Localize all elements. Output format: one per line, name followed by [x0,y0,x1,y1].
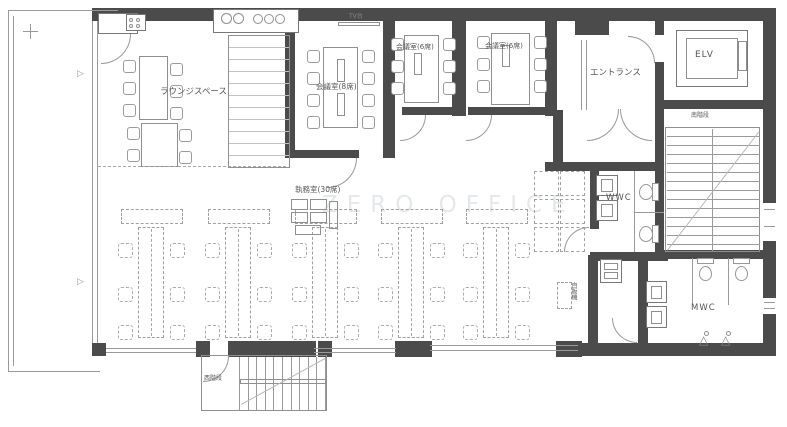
meeting6b-chair [477,58,490,71]
entrance-door-arc [587,109,619,141]
desk-chair [378,287,393,302]
desk-chair [378,243,393,258]
desk-chair [463,325,478,340]
plan-line [692,258,693,305]
stair-tread [667,226,760,227]
wall-meeting6b-bottom [468,107,546,115]
meeting6b-chair [534,58,547,71]
sink-burner-icon [275,14,285,24]
desk-chair [118,243,133,258]
lounge-chair [127,127,140,140]
desk-chair [292,287,307,302]
plan-line [764,308,775,309]
meeting-room-6b-label: 会議室(6席) [485,43,523,50]
copier-station [291,199,308,210]
locker-dashed [534,227,559,252]
desk-chair [170,287,185,302]
desk-chair [205,287,220,302]
desk-chair [515,287,530,302]
desk-chair [257,325,272,340]
desk-cluster-centerline [496,229,497,336]
desk-chair [344,325,359,340]
plan-line [30,24,31,39]
wall-stub [655,21,664,35]
wall-entrance-top [575,8,609,35]
plan-line [764,302,775,303]
table-monitor [414,53,422,75]
wall-post [395,341,432,357]
plan-line [586,40,587,110]
plan-line [97,21,98,343]
meeting8-chair [362,94,375,107]
wall-niche-left [588,255,598,346]
table-monitor [337,93,345,116]
appliance-dot [129,18,133,22]
desk-cluster-centerline [238,229,239,336]
shelf-line [229,59,289,60]
shelf-line [229,131,289,132]
lounge-chair [123,104,136,117]
south-stairs-label: 南階段 [691,113,709,119]
desk-chair [118,325,133,340]
desk-chair [170,243,185,258]
wwc-label: WWC [606,194,632,203]
toilet-icon [639,226,653,242]
mwc-label: MWC [691,304,716,313]
meeting-room-6a-label: 会議室(6席) [396,44,434,51]
lounge-chair [179,151,192,164]
plan-line [728,258,729,305]
balcony-marker-icon: ▷ [77,70,84,79]
cabinet-line [604,263,618,270]
stair-tread [667,136,760,137]
desk-cluster-centerline [411,229,412,336]
desk-chair [430,325,445,340]
lounge-chair [123,82,136,95]
wall-meeting6a-bottom [402,107,455,115]
plan-line [581,40,582,110]
desk-chair [344,243,359,258]
meeting8-chair [307,116,320,129]
shelf-line [229,107,289,108]
desk-chair [257,287,272,302]
meeting8-chair [362,72,375,85]
stair-tread [667,244,760,245]
niche-door-arc [612,318,637,343]
sink-burner-icon [221,13,232,24]
desk-chair [430,243,445,258]
stair-tread [667,235,760,236]
plan-line [314,352,396,353]
stair-tread [667,163,760,164]
lounge-office-divider [98,166,286,167]
stair-tread [667,199,760,200]
meeting8-door-arc [327,158,357,188]
meeting6b-chair [477,80,490,93]
lounge-chair [170,63,183,76]
copier-station [295,225,321,235]
wall-top [92,8,775,21]
stair-tread [667,172,760,173]
lounge-chair [123,60,136,73]
entrance-label: エントランス [590,69,641,78]
floor-plan: ZERO OFFICE ラウンジスペース 会議室(8席) TV台 会議室(6席)… [0,0,787,427]
plan-line [634,212,664,213]
watermark-text: ZERO OFFICE [322,192,575,218]
shelf-line [229,71,289,72]
storage-shelf [228,35,290,168]
toilet-tank [652,183,659,201]
shelf-line [229,143,289,144]
elv-hall-door-arc [628,36,655,63]
lounge-chair [170,107,183,120]
meeting6b-chair [534,80,547,93]
desk-chair [378,325,393,340]
appliance-dot [129,24,133,28]
desk-chair [463,243,478,258]
toilet-tank [652,225,659,243]
shelf-line [229,119,289,120]
lounge-chair [127,149,140,162]
desk-chair [292,243,307,258]
office-label: 執務室(30席) [295,186,340,194]
urinal-icon: △ [699,334,708,346]
sink-basin [601,179,613,192]
toilet-icon [735,266,748,281]
shelf-line [229,95,289,96]
plan-line [314,348,396,349]
desk-chair [118,287,133,302]
plan-line [430,350,578,351]
desk-chair [205,243,220,258]
cabinet-line [604,272,618,279]
plan-line [106,352,196,353]
desk-chair [292,325,307,340]
desk-chair [257,243,272,258]
meeting6a-door-arc [400,115,426,141]
wall-meeting8-bottom [285,150,359,158]
plan-line [106,348,196,349]
meeting8-chair [362,50,375,63]
desk-cluster-cap [208,209,270,224]
elevator-rail [738,41,747,71]
stair-tread [667,181,760,182]
plan-line [764,226,775,227]
plan-line [8,10,9,372]
urinal-icon: △ [721,334,730,346]
stair-tread [667,208,760,209]
wall-window-gap [763,298,776,314]
meeting8-chair [307,50,320,63]
plan-line [92,21,93,343]
sink-burner-icon [253,14,263,24]
meeting8-chair [307,94,320,107]
desk-chair [463,287,478,302]
wall-post [556,341,582,357]
meeting6a-chair [443,38,456,51]
vending-label: 自販機 [570,282,576,300]
appliance-icon [126,14,146,31]
copier-station [291,212,308,223]
stair-tread [667,154,760,155]
meeting-room-8-label: 会議室(8席) [316,83,357,91]
desk-chair [515,243,530,258]
meeting6a-chair [443,82,456,95]
elevator-label: ELV [695,51,714,60]
plan-line [13,16,14,366]
tv-stand-label: TV台 [349,14,363,20]
table-monitor [337,59,345,82]
shelf-line [229,47,289,48]
shelf-line [229,155,289,156]
desk-cluster-centerline [325,229,326,336]
desk-chair [515,325,530,340]
shelf-line [229,83,289,84]
plan-line [764,209,775,210]
sink-burner-icon [264,14,274,24]
wall-elv-bottom [655,100,763,109]
sink-burner-icon [233,13,244,24]
wall-bottom-right [578,343,763,356]
appliance-dot [136,18,140,22]
desk-chair [170,325,185,340]
meeting6a-chair [443,60,456,73]
toilet-icon [639,184,653,200]
plan-line [8,371,100,372]
tv-stand [338,22,380,26]
meeting8-chair [362,116,375,129]
meeting6a-chair [391,60,404,73]
meeting6b-chair [534,36,547,49]
desk-chair [205,325,220,340]
appliance-dot [136,24,140,28]
west-stairs-label: 西階段 [204,376,222,382]
plan-line [430,345,578,346]
lounge-chair [179,129,192,142]
desk-cluster-centerline [151,229,152,336]
stair-tread [667,217,760,218]
toilet-tank [733,258,750,264]
toilet-tank [697,258,714,264]
sink-basin [651,311,662,324]
sink-basin [651,286,662,299]
lounge-label: ラウンジスペース [160,88,227,97]
plan-line [8,10,118,11]
balcony-marker-icon: ▷ [77,278,84,287]
wall-lobby-left [553,110,563,166]
meeting6b-door-arc [466,115,492,141]
entrance-door-arc [620,109,652,141]
meeting6a-chair [391,82,404,95]
desk-chair [344,287,359,302]
wall-post [92,343,106,356]
toilet-icon [699,266,712,281]
desk-chair [430,287,445,302]
sink-basin [601,204,613,217]
lounge-table [141,123,178,167]
desk-cluster-cap [121,209,183,224]
